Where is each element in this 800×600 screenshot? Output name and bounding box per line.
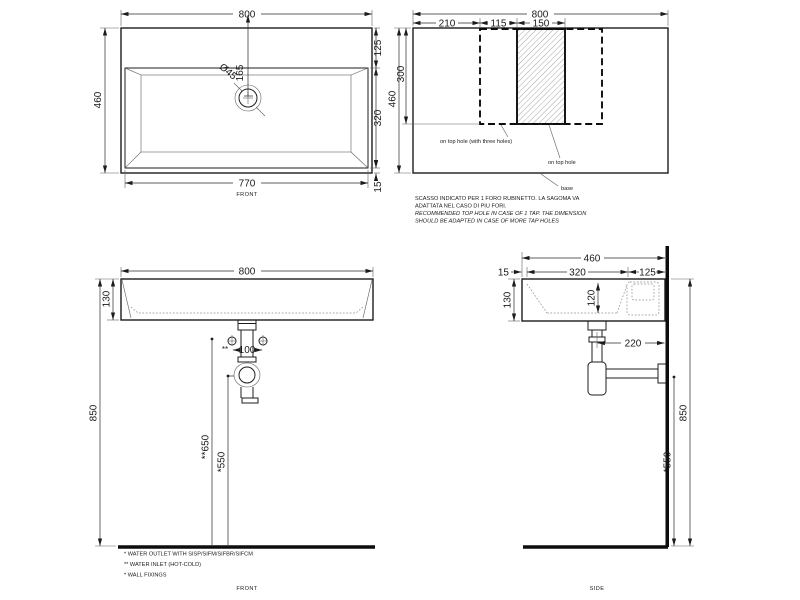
front-basin-outline [121, 279, 373, 320]
side-view-title: SIDE [590, 586, 605, 592]
side-bowl-label: 320 [569, 268, 586, 279]
front-inlet-mark: ** [222, 345, 228, 354]
side-front-rim-label: 15 [498, 268, 510, 279]
plan-hole-offset-label: 165 [235, 64, 246, 81]
callout-one-hole: on top hole [548, 160, 576, 166]
plan-front-rim-label: 15 [373, 181, 384, 193]
drain-trap-side [588, 321, 666, 395]
side-view: 460 15 320 125 120 130 [498, 246, 694, 592]
caption-english-1: RECOMMENDED TOP HOLE IN CASE OF 1 TAP. T… [415, 211, 587, 217]
plan-width-label: 800 [239, 10, 256, 21]
plan-basin-outline [121, 28, 372, 173]
front-inlet-spacing-label: 100 [239, 345, 256, 356]
legend-water-outlet: * WATER OUTLET WITH SISP/SIFM/SIFBR/SIFC… [124, 552, 253, 558]
side-depth-label: 460 [584, 254, 601, 265]
faucet-hole [234, 83, 265, 116]
front-outlet-height-label: *550 [217, 451, 228, 472]
water-inlet-symbols [228, 335, 267, 345]
plan-basin-rim [125, 68, 368, 168]
cutout-hole-zone-label: 150 [533, 19, 550, 30]
plan-back-ledge-label: 125 [373, 39, 384, 56]
front-height-label: 130 [102, 290, 113, 307]
plan-bowl-floor [141, 75, 351, 152]
side-back-ledge-label: 125 [639, 268, 656, 279]
callout-base: base [561, 186, 573, 192]
front-bowl-dotted [131, 307, 363, 313]
side-wall-line [666, 246, 670, 547]
front-total-height-label: 850 [89, 404, 100, 421]
front-width-label: 800 [239, 267, 256, 278]
side-bowl-depth-label: 120 [587, 289, 598, 306]
callout-three-holes: on top hole (with three holes) [440, 139, 512, 145]
plan-bowl-label: 320 [373, 109, 384, 126]
side-height-label: 130 [503, 291, 514, 308]
front-view-title: FRONT [236, 586, 257, 592]
cutout-left-label: 210 [439, 19, 456, 30]
drain-trap-front [234, 320, 260, 403]
caption-english-2: SHOULD BE ADAPTED IN CASE OF MORE TAP HO… [415, 219, 559, 225]
legend-wall-fixings: * WALL FIXINGS [124, 573, 167, 579]
single-hole-cutout-hatched [517, 29, 565, 124]
plan-bowl-chamfers [125, 68, 368, 168]
front-view: 800 130 850 [89, 267, 376, 593]
caption-italian-1: SCASSO INDICATO PER 1 FORO RUBINETTO. LA… [415, 196, 580, 202]
plan-inner-width-label: 770 [239, 179, 256, 190]
plan-view-title: FRONT [236, 192, 257, 198]
cutout-depth-label: 300 [396, 65, 407, 82]
side-total-height-label: 850 [679, 404, 690, 421]
drawing-canvas: Ø45 165 800 460 125 320 15 770 FRONT [0, 0, 800, 600]
plan-height-label: 460 [93, 91, 104, 108]
cutout-view: 800 210 115 150 460 300 on top hole (wit… [388, 10, 669, 225]
technical-drawing-sheet: Ø45 165 800 460 125 320 15 770 FRONT [0, 0, 800, 600]
legend-water-inlet: ** WATER INLET (HOT-COLD) [124, 562, 201, 568]
cutout-mid-label: 115 [491, 19, 507, 30]
side-trap-offset-label: 220 [625, 339, 642, 350]
caption-italian-2: ADATTATA NEL CASO DI PIU FORI. [415, 204, 507, 210]
plan-view: Ø45 165 800 460 125 320 15 770 FRONT [93, 10, 384, 199]
side-outlet-height-label: *550 [663, 451, 674, 472]
cutout-height-label: 460 [388, 90, 399, 107]
front-inlet-height-label: **650 [201, 434, 212, 459]
